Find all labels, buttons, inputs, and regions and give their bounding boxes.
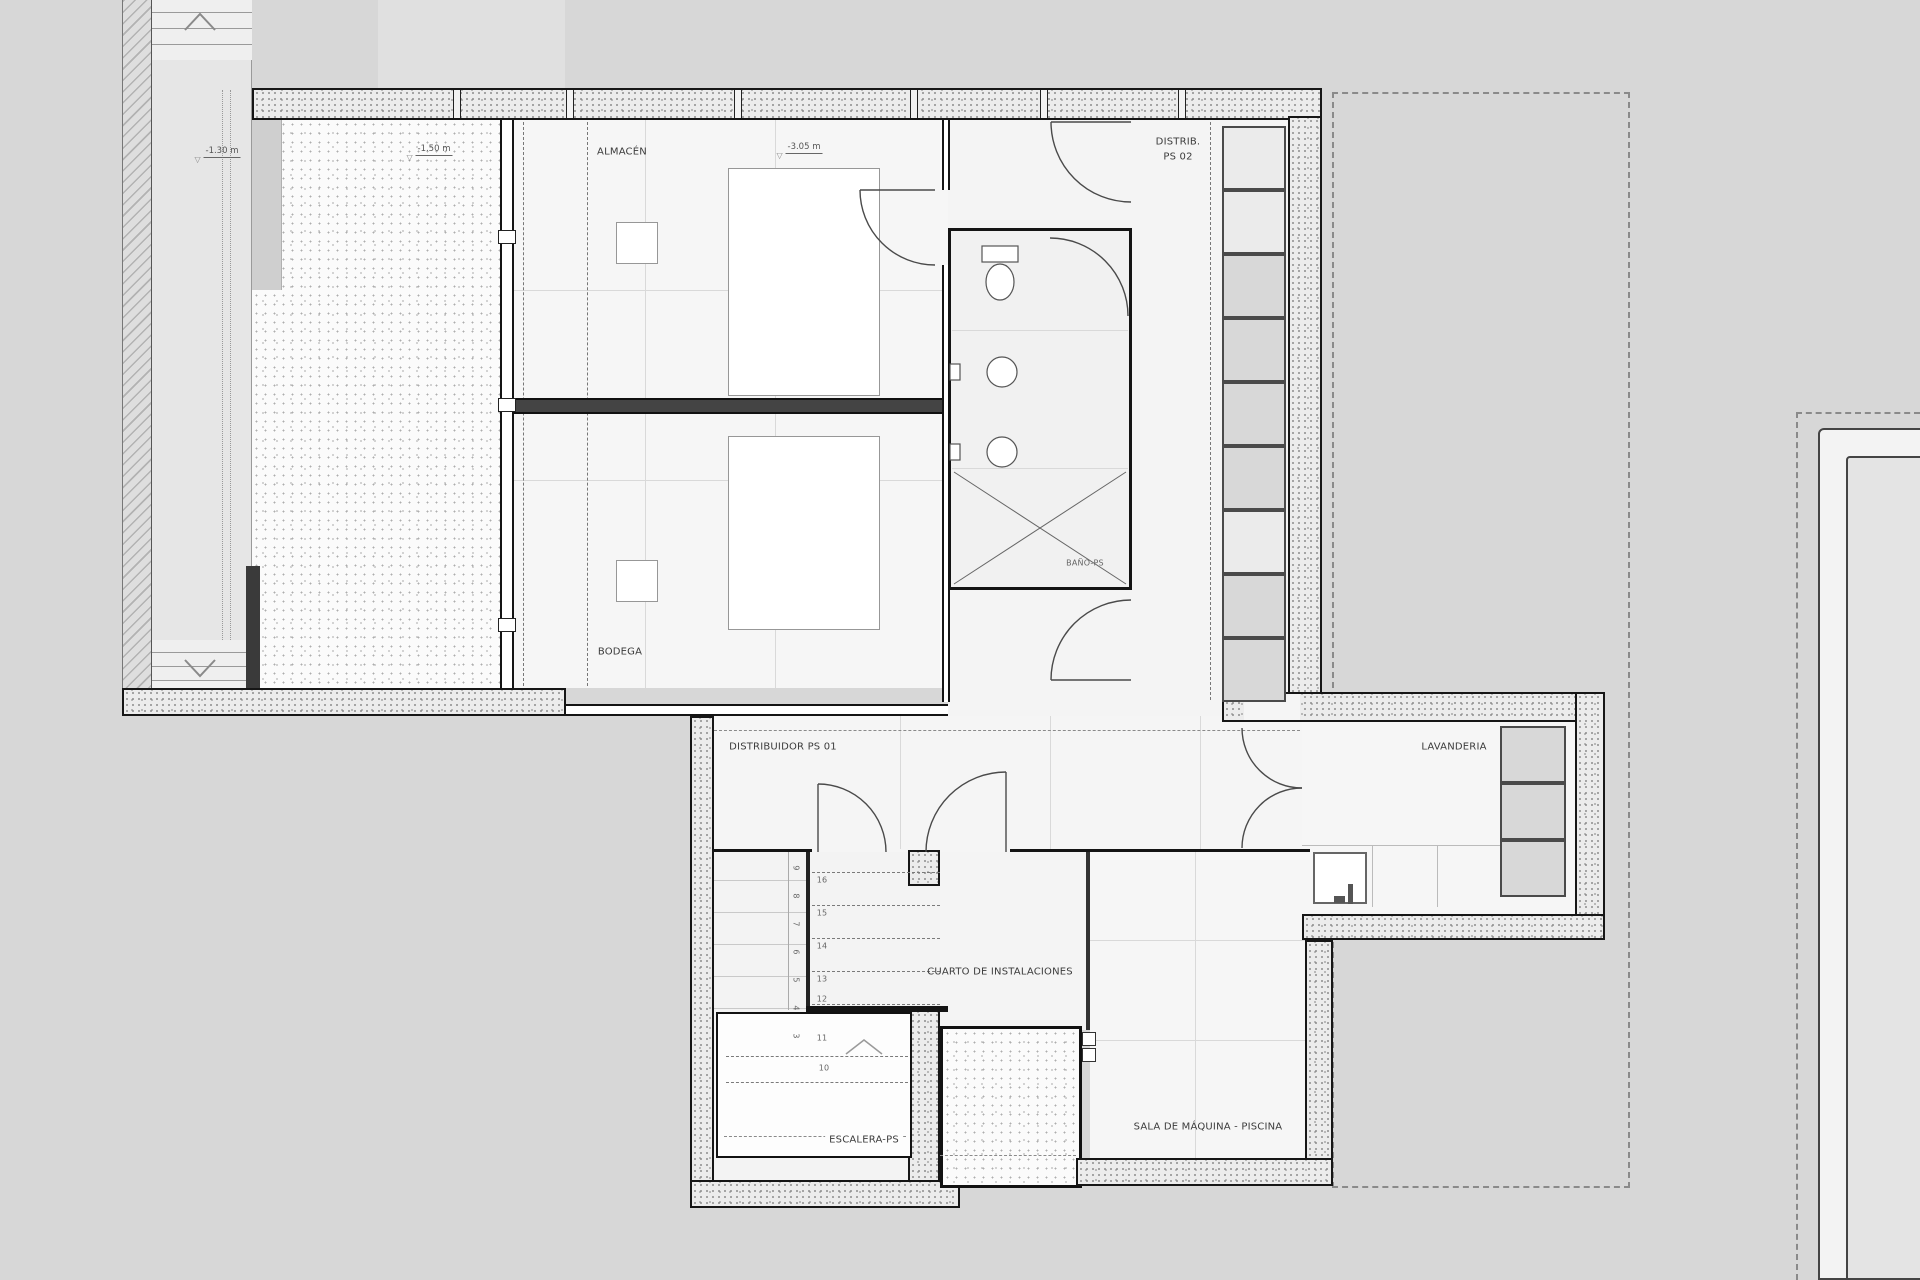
tap-icon xyxy=(1348,884,1353,904)
plan-symbols-overlay xyxy=(0,0,1920,1280)
label-bano-ps: BAÑO-PS xyxy=(1066,559,1104,568)
door-arc xyxy=(1051,600,1131,680)
stair-number: 6 xyxy=(792,949,801,954)
stair-number: 15 xyxy=(817,909,828,918)
chevron-up-icon xyxy=(185,14,215,30)
stair-number: 3 xyxy=(792,1033,801,1038)
stair-number: 10 xyxy=(819,1064,830,1073)
stair-number: 5 xyxy=(792,977,801,982)
chevron-down-icon xyxy=(185,660,215,676)
label-escalera-ps: ESCALERA-PS xyxy=(825,1135,903,1146)
label-sala-maquina: SALA DE MÁQUINA - PISCINA xyxy=(1134,1122,1283,1133)
stair-number: 8 xyxy=(792,893,801,898)
label-bodega: BODEGA xyxy=(598,647,642,658)
label-distribuidor-ps01: DISTRIBUIDOR PS 01 xyxy=(729,742,837,753)
sink-basin xyxy=(987,437,1017,467)
stair-number: 16 xyxy=(817,876,828,885)
stair-number: 4 xyxy=(792,1005,801,1010)
stair-number: 12 xyxy=(817,995,828,1004)
level-marker-courtyard: -1.50 m xyxy=(416,144,453,156)
sink-basin xyxy=(987,357,1017,387)
door-arc xyxy=(1051,122,1131,202)
level-marker-exterior: -1.30 m xyxy=(204,146,241,158)
level-marker-interior: -3.05 m xyxy=(786,142,823,154)
label-distrib-ps02-l1: DISTRIB. xyxy=(1156,137,1201,148)
label-distrib-ps02-l2: PS 02 xyxy=(1163,152,1192,163)
toilet-bowl xyxy=(986,264,1014,300)
door-arc xyxy=(818,784,886,852)
door-arc xyxy=(860,190,935,265)
door-arc xyxy=(1050,238,1128,316)
floor-plan: -1.30 m -1.50 m -3.05 m ALMACÉN BODEGA B… xyxy=(0,0,1920,1280)
sink-counter xyxy=(950,364,960,380)
stair-number: 11 xyxy=(817,1034,828,1043)
chevron-up-icon xyxy=(846,1040,882,1054)
toilet-tank xyxy=(982,246,1018,262)
label-lavanderia: LAVANDERIA xyxy=(1421,742,1486,753)
door-arc xyxy=(926,772,1006,852)
tap-icon xyxy=(1334,896,1345,903)
stair-number: 7 xyxy=(792,921,801,926)
stair-number: 9 xyxy=(792,865,801,870)
label-cuarto-instalaciones: CUARTO DE INSTALACIONES xyxy=(927,967,1073,978)
door-arc xyxy=(1242,788,1302,848)
sink-counter xyxy=(950,444,960,460)
stair-number: 13 xyxy=(817,975,828,984)
door-arc xyxy=(1242,728,1302,788)
label-almacen: ALMACÉN xyxy=(597,147,647,158)
stair-number: 14 xyxy=(817,942,828,951)
